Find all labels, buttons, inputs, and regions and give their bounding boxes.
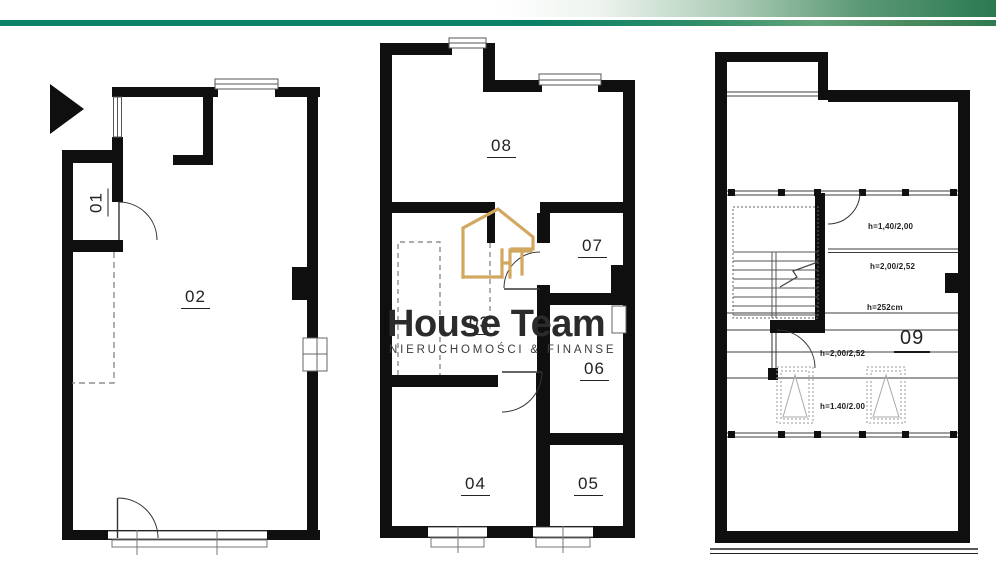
stair-direction-line <box>780 262 818 287</box>
door <box>828 192 860 224</box>
room-label-06: 06 <box>580 360 609 377</box>
window <box>449 38 486 55</box>
floor-plan-attic <box>710 52 978 554</box>
door <box>772 330 815 368</box>
wall-niche <box>612 306 626 333</box>
window <box>108 530 267 555</box>
window <box>215 79 278 97</box>
room-label-02: 02 <box>181 288 210 305</box>
chimney-block <box>292 267 318 300</box>
knee-wall <box>727 431 958 438</box>
door <box>119 202 157 240</box>
floorplan-page: 01 02 03 04 05 06 07 08 09 h=1,40/2,00 h… <box>0 0 996 564</box>
room-label-05: 05 <box>574 475 603 492</box>
room-label-07: 07 <box>578 237 607 254</box>
roof-window <box>867 367 905 423</box>
height-annotation: h=1,40/2,00 <box>868 223 913 231</box>
window <box>428 526 487 553</box>
chimney-block <box>611 265 635 305</box>
watermark-subtitle: NIERUCHOMOŚCI & FINANSE <box>389 345 616 357</box>
watermark-title: House Team <box>387 305 605 343</box>
chimney-block <box>945 273 958 293</box>
knee-wall <box>727 189 958 196</box>
roof-window <box>777 367 813 423</box>
room-label-04: 04 <box>461 475 490 492</box>
height-annotation: h=252cm <box>867 304 903 312</box>
room-label-08: 08 <box>487 137 516 154</box>
height-zone-lines <box>727 249 958 378</box>
window <box>114 97 122 137</box>
slope-dashed-line <box>72 252 114 383</box>
height-annotation: h=2,00/2,52 <box>820 350 865 358</box>
room-label-01: 01 <box>88 183 105 223</box>
floor-plan-1 <box>50 79 327 555</box>
window <box>533 526 593 553</box>
window <box>303 338 327 371</box>
room-label-09: 09 <box>894 328 930 348</box>
height-annotation: h=1.40/2.00 <box>820 403 865 411</box>
height-annotation: h=2,00/2,52 <box>870 263 915 271</box>
window <box>539 74 601 92</box>
house-outline-icon <box>455 203 539 283</box>
north-arrow-icon <box>50 84 84 134</box>
